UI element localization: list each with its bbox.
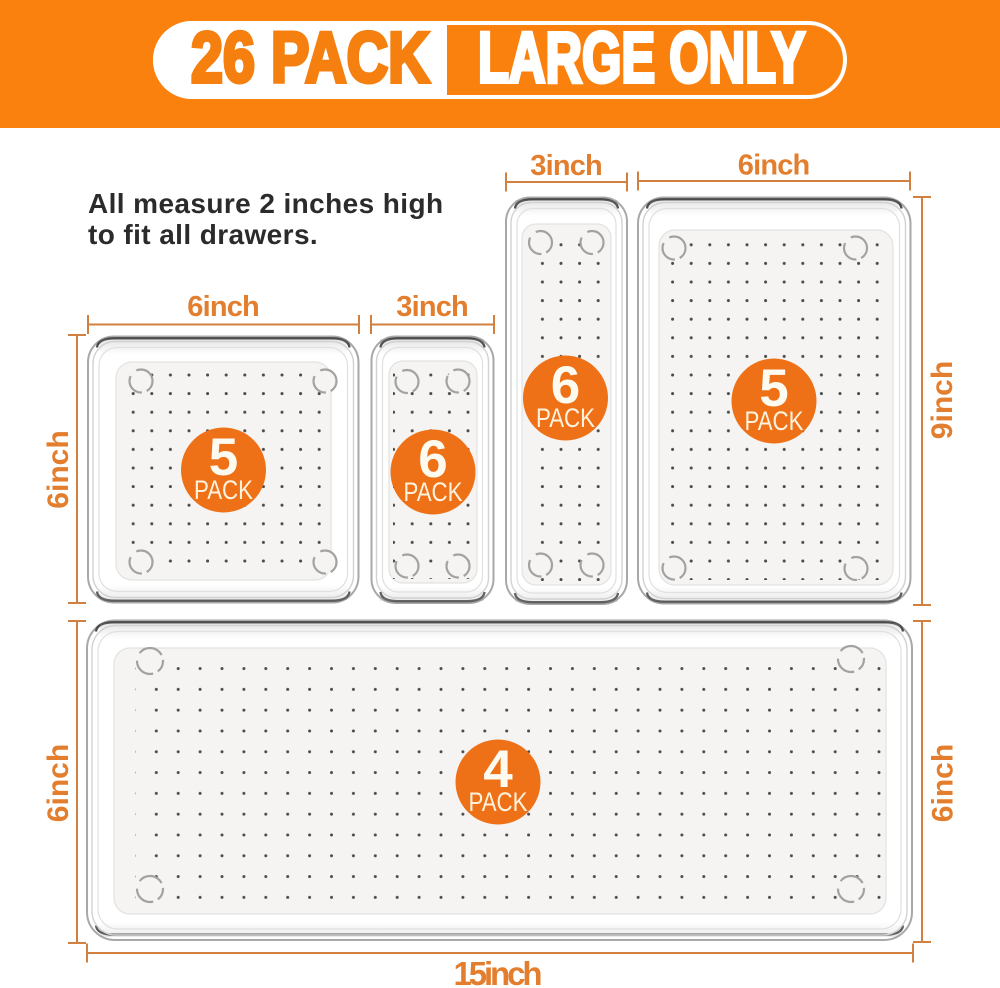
svg-text:9inch: 9inch: [926, 361, 959, 439]
svg-text:PACK: PACK: [404, 477, 463, 507]
svg-text:PACK: PACK: [745, 406, 804, 436]
svg-text:6inch: 6inch: [187, 291, 260, 323]
svg-text:3inch: 3inch: [530, 150, 603, 182]
svg-text:PACK: PACK: [469, 787, 528, 817]
svg-text:6inch: 6inch: [42, 430, 75, 508]
svg-text:PACK: PACK: [536, 403, 595, 433]
svg-text:3inch: 3inch: [396, 291, 469, 323]
svg-text:15inch: 15inch: [454, 955, 543, 988]
svg-text:PACK: PACK: [194, 475, 253, 505]
svg-text:6inch: 6inch: [738, 150, 811, 182]
svg-text:6inch: 6inch: [42, 744, 75, 822]
svg-text:6inch: 6inch: [927, 744, 960, 822]
